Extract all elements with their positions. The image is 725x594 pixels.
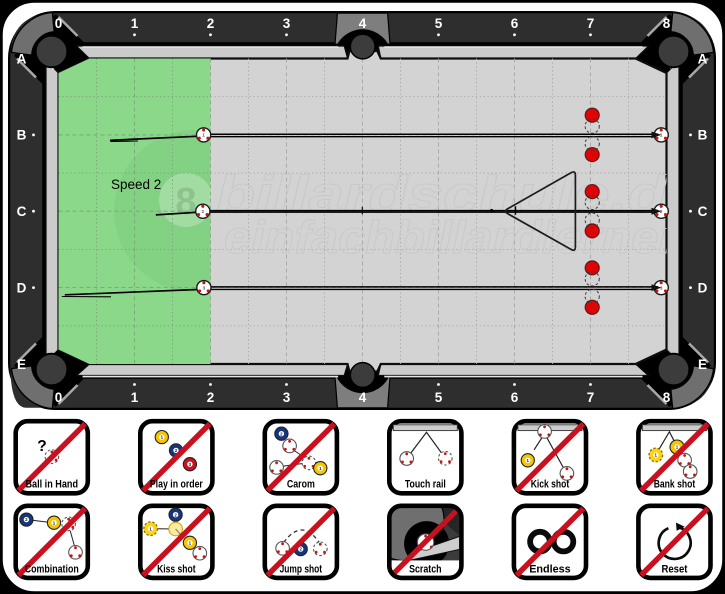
svg-text:A: A xyxy=(698,51,708,66)
svg-text:A: A xyxy=(17,51,27,66)
svg-text:Kick shot: Kick shot xyxy=(531,479,570,491)
svg-text:Touch rail: Touch rail xyxy=(405,479,446,491)
svg-text:2: 2 xyxy=(207,16,215,31)
svg-text:1: 1 xyxy=(131,390,139,405)
svg-text:C: C xyxy=(698,204,708,219)
svg-text:2: 2 xyxy=(207,390,215,405)
svg-text:Combination: Combination xyxy=(25,563,79,575)
svg-text:C: C xyxy=(17,204,27,219)
svg-text:6: 6 xyxy=(511,16,519,31)
svg-text:?: ? xyxy=(37,438,46,455)
svg-text:1: 1 xyxy=(202,133,205,138)
svg-text:Jump shot: Jump shot xyxy=(280,563,323,575)
svg-text:3: 3 xyxy=(203,285,206,290)
svg-text:Carom: Carom xyxy=(287,479,315,491)
svg-text:B: B xyxy=(698,128,708,143)
svg-text:Speed 2: Speed 2 xyxy=(111,177,161,192)
svg-text:Kiss shot: Kiss shot xyxy=(157,563,196,575)
svg-text:7: 7 xyxy=(587,390,595,405)
svg-text:0: 0 xyxy=(55,390,63,405)
svg-text:0: 0 xyxy=(55,16,63,31)
svg-text:6: 6 xyxy=(511,390,519,405)
svg-text:E: E xyxy=(17,357,26,372)
svg-text:5: 5 xyxy=(435,16,443,31)
svg-text:Bank shot: Bank shot xyxy=(654,479,696,491)
svg-text:8: 8 xyxy=(663,390,671,405)
svg-text:3: 3 xyxy=(283,16,291,31)
svg-text:B: B xyxy=(17,128,27,143)
svg-text:8: 8 xyxy=(663,16,671,31)
svg-text:Scratch: Scratch xyxy=(409,563,442,575)
svg-text:5: 5 xyxy=(435,390,443,405)
svg-text:Play in order: Play in order xyxy=(150,479,203,491)
svg-text:8: 8 xyxy=(175,181,196,223)
svg-text:4: 4 xyxy=(359,16,367,31)
svg-text:E: E xyxy=(698,357,707,372)
svg-text:4: 4 xyxy=(359,390,367,405)
svg-text:Ball in Hand: Ball in Hand xyxy=(26,479,79,491)
svg-text:einfachbillardlernen.: einfachbillardlernen. xyxy=(224,211,702,263)
svg-text:2: 2 xyxy=(202,209,205,214)
svg-text:Endless: Endless xyxy=(529,563,571,575)
svg-text:D: D xyxy=(698,280,708,295)
svg-text:1: 1 xyxy=(131,16,139,31)
svg-text:D: D xyxy=(17,280,27,295)
svg-text:7: 7 xyxy=(587,16,595,31)
svg-text:3: 3 xyxy=(283,390,291,405)
svg-text:Reset: Reset xyxy=(661,563,687,575)
